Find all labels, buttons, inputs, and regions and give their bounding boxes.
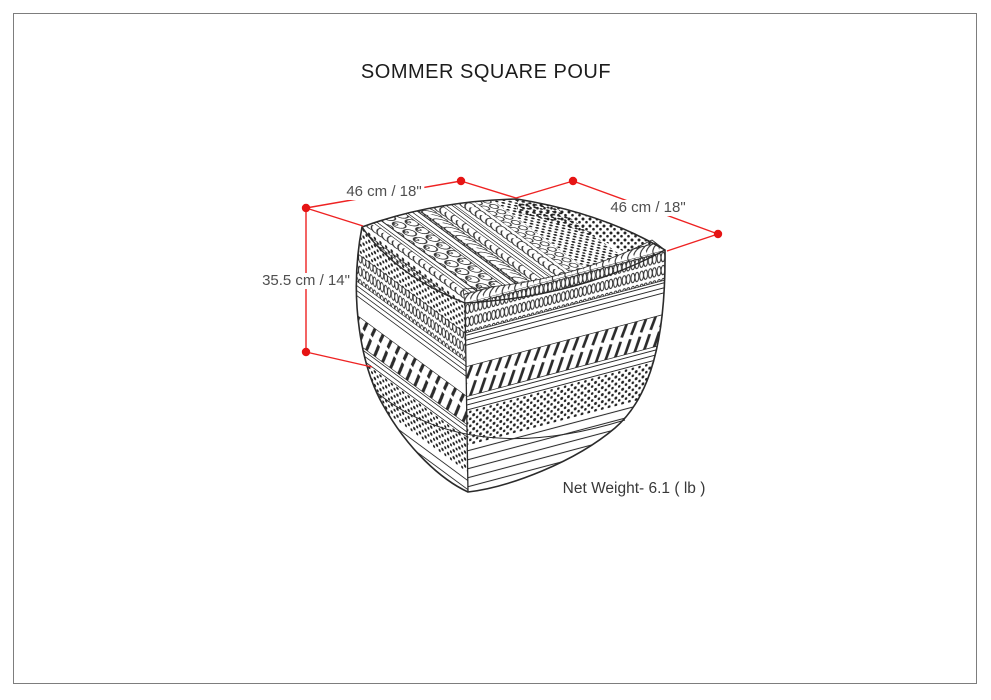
dimension-label-height: 35.5 cm / 14" [259, 273, 353, 289]
dimension-label-width-left: 46 cm / 18" [343, 184, 424, 200]
net-weight-label: Net Weight- 6.1 ( lb ) [563, 480, 706, 498]
diagram-page: SOMMER SQUARE POUF 46 cm / 18" 46 cm / 1… [0, 0, 991, 700]
dimension-label-width-right: 46 cm / 18" [607, 200, 688, 216]
diagram-canvas [0, 0, 991, 700]
page-title: SOMMER SQUARE POUF [361, 61, 611, 84]
